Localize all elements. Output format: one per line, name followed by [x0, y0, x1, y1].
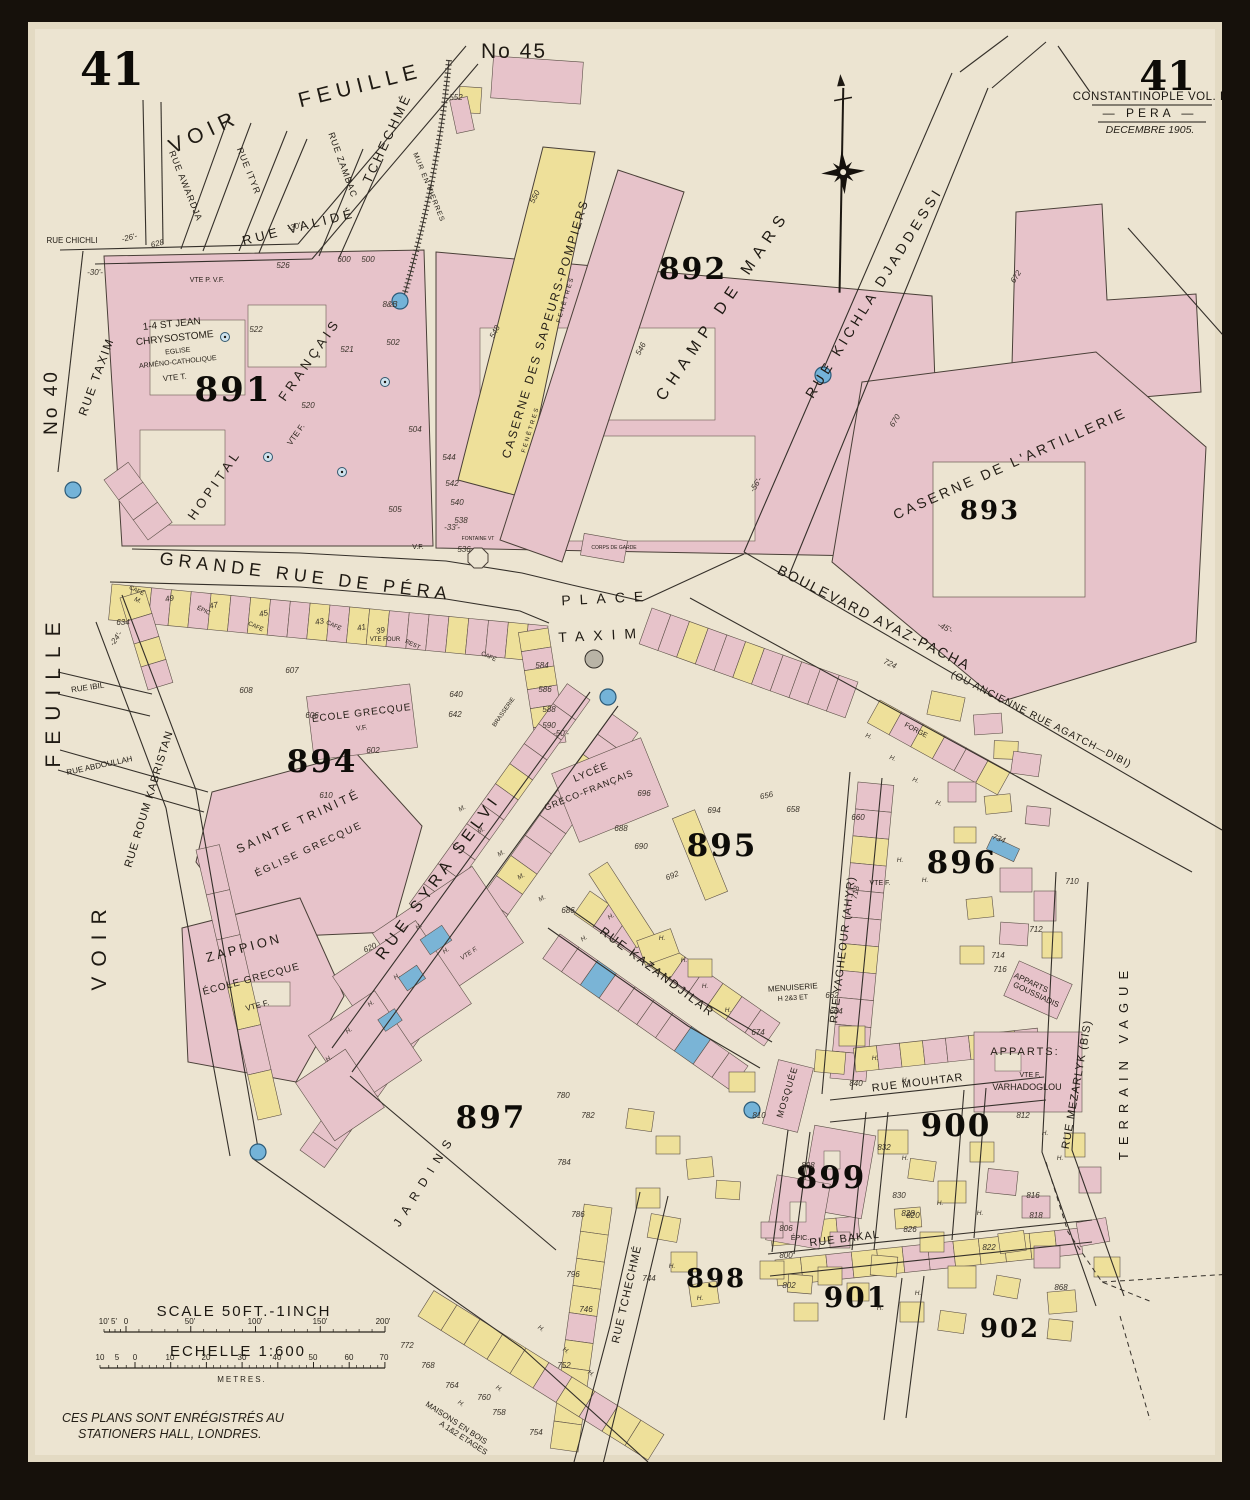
house-number: 521 — [340, 345, 353, 354]
title-date: DECEMBRE 1905. — [1106, 124, 1195, 136]
lot-mark: H. — [725, 1007, 732, 1014]
building-cell — [636, 1188, 660, 1208]
lot-mark: H. — [669, 1263, 676, 1270]
building-label: VTE F. — [869, 880, 890, 887]
fountain-octagon — [468, 548, 488, 568]
block-number: 891 — [195, 370, 272, 410]
building-cell — [993, 1275, 1020, 1299]
building-cell — [908, 1158, 937, 1181]
house-number: 607 — [285, 666, 299, 675]
building-label: APPARTS: — [990, 1046, 1059, 1058]
metre-tick-label: 10 — [96, 1353, 105, 1362]
fountain-circle — [585, 650, 603, 668]
metre-tick-label: 50 — [309, 1353, 318, 1362]
block-number: 902 — [980, 1314, 1040, 1344]
block-number: 897 — [456, 1100, 527, 1136]
building-cell — [1034, 1246, 1060, 1268]
lot-mark: H. — [1042, 1130, 1049, 1137]
street-label: FEUILLE — [42, 612, 65, 767]
building-label: V.F. — [412, 544, 423, 551]
house-number: 502 — [386, 338, 400, 347]
map-canvas: 41 41 CONSTANTINOPLE VOL. II — PERA — DE… — [0, 0, 1250, 1500]
sheet-number-left: 41 — [80, 42, 144, 96]
building-cell — [953, 1239, 981, 1268]
cistern-dot — [65, 482, 81, 498]
feet-tick-label: 100' — [248, 1317, 263, 1326]
metre-tick-label: 60 — [345, 1353, 354, 1362]
metre-tick-label: 5 — [115, 1353, 120, 1362]
building-cell — [966, 897, 994, 920]
house-number: 784 — [557, 1158, 571, 1167]
building-cell — [973, 713, 1002, 735]
house-number: 584 — [535, 661, 549, 670]
frame-bottom — [0, 1462, 1250, 1500]
house-number: 608 — [239, 686, 253, 695]
building-label: CORPS DE GARDE — [591, 545, 637, 551]
building-label: VTE F. — [1019, 1072, 1040, 1079]
house-number: 716 — [993, 965, 1007, 974]
house-number: 588 — [542, 705, 556, 714]
house-number: 640 — [449, 690, 463, 699]
building-cell — [491, 56, 584, 104]
building-cell — [960, 946, 984, 964]
house-number: 816 — [1026, 1191, 1040, 1200]
metre-tick-label: 0 — [133, 1353, 138, 1362]
building-label: VARHADOGLOU — [992, 1082, 1061, 1092]
house-number: 812 — [1016, 1111, 1030, 1120]
lot-mark: H. — [915, 1290, 922, 1297]
house-number: 806 — [779, 1224, 793, 1233]
building-label: V.F. — [356, 724, 368, 732]
house-number: 606 — [305, 711, 319, 720]
building-cell — [227, 595, 250, 633]
lot-mark: H. — [702, 983, 709, 990]
scale-feet-title: SCALE 50FT.-1INCH — [157, 1303, 332, 1320]
building-cell — [986, 1168, 1018, 1195]
house-number: 746 — [579, 1305, 593, 1314]
house-number: 810 — [752, 1111, 766, 1120]
metre-tick-label: 70 — [380, 1353, 389, 1362]
house-number: 686 — [561, 906, 575, 915]
lot-mark: H. — [872, 1055, 879, 1062]
lot-mark: H. — [922, 877, 929, 884]
house-number: 768 — [421, 1361, 435, 1370]
building-label: FONTAINE VT — [462, 536, 495, 542]
lot-mark: H. — [877, 1305, 884, 1312]
building-cell — [729, 1072, 755, 1092]
building-cell — [426, 615, 449, 653]
street-label: TERRAIN VAGUE — [1116, 964, 1131, 1160]
cistern-dot — [250, 1144, 266, 1160]
building-cell — [948, 1266, 976, 1288]
house-number: 526 — [276, 261, 290, 270]
feet-tick-label: 10' — [99, 1317, 110, 1326]
block-number: 898 — [686, 1264, 746, 1294]
building-cell — [550, 1421, 582, 1452]
house-number: 772 — [400, 1341, 414, 1350]
house-number: 802 — [782, 1281, 796, 1290]
house-number: 664 — [829, 1007, 843, 1016]
building-cell — [984, 794, 1012, 815]
street-label: No 45 — [481, 40, 547, 63]
building-cell — [208, 594, 231, 632]
house-number: 830 — [892, 1191, 906, 1200]
building-cell — [1025, 806, 1051, 826]
building-cell — [1000, 868, 1032, 892]
house-number: 540 — [450, 498, 464, 507]
house-number: 542 — [445, 479, 459, 488]
house-number: 696 — [637, 789, 651, 798]
metre-tick-label: 30 — [238, 1353, 247, 1362]
house-number: 764 — [445, 1381, 459, 1390]
house-number: 760 — [477, 1393, 491, 1402]
house-number: -50'- — [553, 729, 569, 738]
building-cell — [922, 1038, 948, 1064]
house-number: 754 — [529, 1428, 543, 1437]
house-number: 826 — [903, 1225, 917, 1234]
frame-top — [0, 0, 1250, 22]
house-number: 868 — [1054, 1283, 1068, 1292]
house-number: 662 — [825, 991, 839, 1000]
building-cell — [876, 1043, 902, 1069]
house-number: 796 — [566, 1270, 580, 1279]
house-number: 800 — [779, 1251, 793, 1260]
building-cell — [945, 1036, 971, 1062]
house-number: 41 — [356, 622, 367, 633]
house-number: 828 — [901, 1209, 915, 1218]
house-number: 522 — [249, 325, 263, 334]
lot-mark: H. — [902, 1155, 909, 1162]
building-cell — [999, 922, 1028, 946]
lot-mark: H. — [977, 1210, 984, 1217]
building-cell — [485, 620, 508, 658]
building-label: ÉPIC. — [791, 1233, 809, 1242]
block-number: 900 — [921, 1108, 992, 1144]
building-cell — [715, 1180, 740, 1200]
street-label: No 40 — [41, 369, 62, 435]
building-cell — [577, 1231, 609, 1262]
building-cell — [686, 1157, 714, 1180]
house-number: 786 — [571, 1210, 585, 1219]
feet-tick-label: 150' — [313, 1317, 328, 1326]
house-number: 694 — [707, 806, 721, 815]
metre-tick-label: 10 — [166, 1353, 175, 1362]
house-number: 822 — [982, 1243, 996, 1252]
feet-tick-label: 0 — [124, 1317, 129, 1326]
lot-mark: H. — [1057, 1155, 1064, 1162]
building-cell — [688, 959, 712, 977]
feet-tick-label: 200' — [376, 1317, 391, 1326]
house-number: 602 — [366, 746, 380, 755]
building-cell — [954, 827, 976, 843]
house-number: 552 — [449, 93, 463, 102]
building-cell — [839, 1026, 865, 1046]
building-cell — [1047, 1319, 1073, 1341]
house-number: 832 — [877, 1143, 891, 1152]
street-label: VOIR — [88, 899, 111, 990]
feet-tick-label: 5' — [111, 1317, 117, 1326]
house-number: -33'- — [444, 523, 460, 532]
cistern-dot — [600, 689, 616, 705]
house-number: 782 — [581, 1111, 595, 1120]
block-number: 893 — [960, 496, 1020, 526]
lot-mark: H. — [902, 1077, 909, 1084]
map-sheet: { "header": { "sheet_number_left": "41",… — [0, 0, 1250, 1500]
house-number: 536 — [457, 545, 471, 554]
building-cell — [465, 618, 488, 656]
house-number: 634 — [116, 618, 130, 627]
feet-tick-label: 50' — [185, 1317, 196, 1326]
building-cell — [647, 1214, 681, 1243]
house-number: 8&B — [382, 300, 398, 309]
registration-note-line2: STATIONERS HALL, LONDRES. — [78, 1427, 262, 1441]
house-number: 500 — [361, 255, 375, 264]
house-number: 780 — [556, 1091, 570, 1100]
building-cell — [626, 1108, 655, 1131]
house-number: 642 — [448, 710, 462, 719]
building-cell — [899, 1041, 925, 1067]
lot-mark: H. — [697, 1295, 704, 1302]
house-number: 690 — [634, 842, 648, 851]
building-cell — [970, 1142, 994, 1162]
street-label: RUE CHICHLI — [46, 236, 97, 245]
hydrant-dot — [384, 381, 386, 383]
lot-mark: H. — [659, 935, 666, 942]
house-number: 688 — [614, 824, 628, 833]
house-number: -30'- — [87, 268, 103, 277]
building-cell — [580, 1204, 612, 1235]
house-number: 818 — [1029, 1211, 1043, 1220]
registration-note-line1: CES PLANS SONT ENRÉGISTRÉS AU — [62, 1410, 285, 1425]
house-number: 600 — [337, 255, 351, 264]
hydrant-dot — [341, 471, 343, 473]
building-cell — [565, 1313, 597, 1344]
metre-tick-label: 40 — [273, 1353, 282, 1362]
building-cell — [1011, 751, 1042, 777]
building-cell — [920, 1232, 944, 1252]
title-volume: CONSTANTINOPLE VOL. II — [1073, 91, 1228, 103]
house-number: 660 — [851, 813, 865, 822]
house-number: 714 — [991, 951, 1005, 960]
metres-label: METRES. — [217, 1375, 267, 1384]
frame-left — [0, 0, 28, 1500]
building-cell — [814, 1050, 846, 1075]
building-cell — [656, 1136, 680, 1154]
building-cell — [1047, 1290, 1077, 1314]
hydrant-dot — [224, 336, 226, 338]
courtyard — [790, 1202, 806, 1222]
house-number: 674 — [751, 1028, 765, 1037]
block-number: 896 — [927, 845, 998, 881]
house-number: 610 — [319, 791, 333, 800]
building-cell — [794, 1303, 818, 1321]
house-number: 505 — [388, 505, 402, 514]
building-cell — [287, 601, 310, 639]
house-number: 808 — [801, 1161, 815, 1170]
house-number: 544 — [442, 453, 456, 462]
house-number: 840 — [849, 1079, 863, 1088]
frame-right — [1222, 0, 1250, 1500]
building-cell — [948, 782, 976, 802]
house-number: 658 — [786, 805, 800, 814]
house-number: 504 — [408, 425, 422, 434]
building-cell — [850, 836, 888, 866]
lot-mark: H. — [897, 857, 904, 864]
house-number: 520 — [301, 401, 315, 410]
block-number: 894 — [287, 744, 358, 780]
building-cell — [267, 599, 290, 637]
house-number: 752 — [557, 1361, 571, 1370]
lot-mark: H. — [681, 957, 688, 964]
building-cell — [870, 1255, 898, 1277]
block-number: 895 — [687, 828, 758, 864]
hydrant-dot — [267, 456, 269, 458]
building-cell — [1034, 891, 1056, 921]
building-cell — [445, 616, 468, 654]
building-cell — [938, 1310, 967, 1333]
building-label: VTE FOUR — [370, 637, 401, 643]
lot-mark: H. — [937, 1200, 944, 1207]
house-number: 744 — [642, 1274, 656, 1283]
building-label: VTE P. V.F. — [190, 277, 225, 284]
house-number: 710 — [1065, 877, 1079, 886]
house-number: 586 — [538, 685, 552, 694]
metre-tick-label: 20 — [202, 1353, 211, 1362]
block-number: 892 — [659, 252, 728, 287]
title-area: — PERA — — [1103, 106, 1198, 120]
house-number: 758 — [492, 1408, 506, 1417]
house-number: 712 — [1029, 925, 1043, 934]
building-cell — [855, 782, 893, 812]
